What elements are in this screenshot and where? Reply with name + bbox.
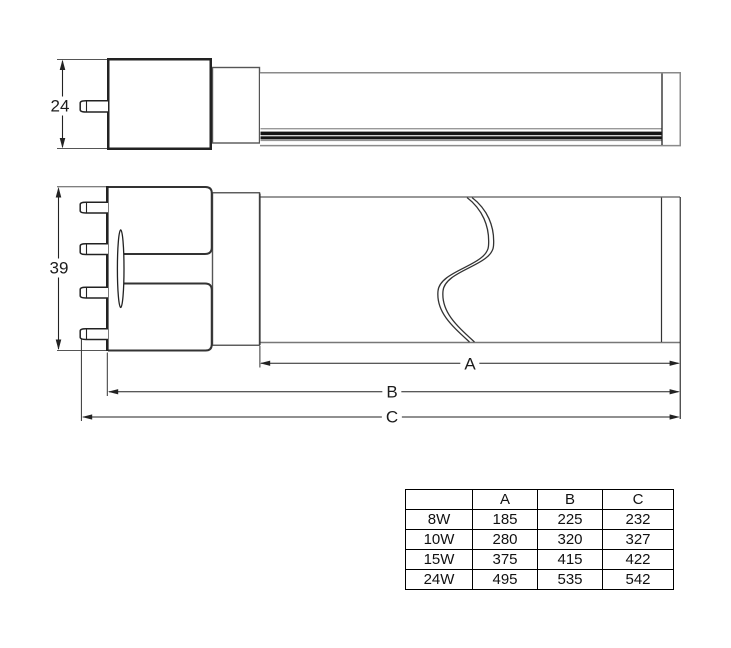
- arrowhead-up-icon: [56, 187, 62, 198]
- value-c: 542: [603, 570, 674, 590]
- dim-label-c: C: [382, 408, 402, 427]
- value-b: 225: [538, 510, 603, 530]
- led-strip-line: [261, 139, 662, 141]
- arrowhead-right-icon: [670, 361, 680, 366]
- value-b: 415: [538, 550, 603, 570]
- side-view: [57, 59, 680, 149]
- plan-view: [56, 186, 681, 419]
- model-cell: 8W: [406, 510, 473, 530]
- lamp-base-cap: [108, 59, 211, 149]
- led-strip-line: [261, 128, 662, 129]
- value-b: 320: [538, 530, 603, 550]
- arrowhead-left-icon: [260, 361, 270, 366]
- value-c: 232: [603, 510, 674, 530]
- table-row: 10W 280 320 327: [406, 530, 674, 550]
- table-row: 24W 495 535 542: [406, 570, 674, 590]
- led-strip: [261, 132, 662, 136]
- col-header-c: C: [603, 490, 674, 510]
- value-b: 535: [538, 570, 603, 590]
- pin: [80, 287, 108, 298]
- col-header-blank: [406, 490, 473, 510]
- table-row: 15W 375 415 422: [406, 550, 674, 570]
- pin: [80, 329, 108, 340]
- table-header-row: A B C: [406, 490, 674, 510]
- model-cell: 15W: [406, 550, 473, 570]
- value-a: 375: [473, 550, 538, 570]
- col-header-b: B: [538, 490, 603, 510]
- led-strip: [261, 136, 662, 139]
- lamp-tube-fill: [260, 198, 680, 343]
- dim-label-b: B: [382, 383, 401, 402]
- pin: [80, 202, 108, 213]
- technical-drawing-page: 24 39 A B C A B C 8W 185 225 232 10W 280…: [0, 0, 731, 648]
- arrowhead-left-icon: [108, 389, 118, 394]
- model-cell: 10W: [406, 530, 473, 550]
- table-row: 8W 185 225 232: [406, 510, 674, 530]
- dim-label-a: A: [460, 355, 479, 374]
- arrowhead-right-icon: [670, 414, 680, 419]
- pin: [80, 244, 108, 255]
- col-header-a: A: [473, 490, 538, 510]
- value-a: 280: [473, 530, 538, 550]
- lamp-neck: [213, 68, 260, 144]
- arrowhead-down-icon: [56, 340, 62, 351]
- dim-label-24: 24: [47, 97, 74, 116]
- dim-label-39: 39: [46, 259, 73, 278]
- pin: [80, 101, 108, 112]
- arrowhead-left-icon: [82, 414, 92, 419]
- value-c: 327: [603, 530, 674, 550]
- arrowhead-up-icon: [60, 60, 66, 70]
- value-a: 185: [473, 510, 538, 530]
- locking-tab: [117, 230, 124, 308]
- spec-table: A B C 8W 185 225 232 10W 280 320 327 15W…: [405, 489, 674, 590]
- length-dimensions: [81, 340, 680, 422]
- lamp-neck: [213, 193, 260, 346]
- value-c: 422: [603, 550, 674, 570]
- model-cell: 24W: [406, 570, 473, 590]
- arrowhead-right-icon: [670, 389, 680, 394]
- arrowhead-down-icon: [60, 138, 66, 148]
- value-a: 495: [473, 570, 538, 590]
